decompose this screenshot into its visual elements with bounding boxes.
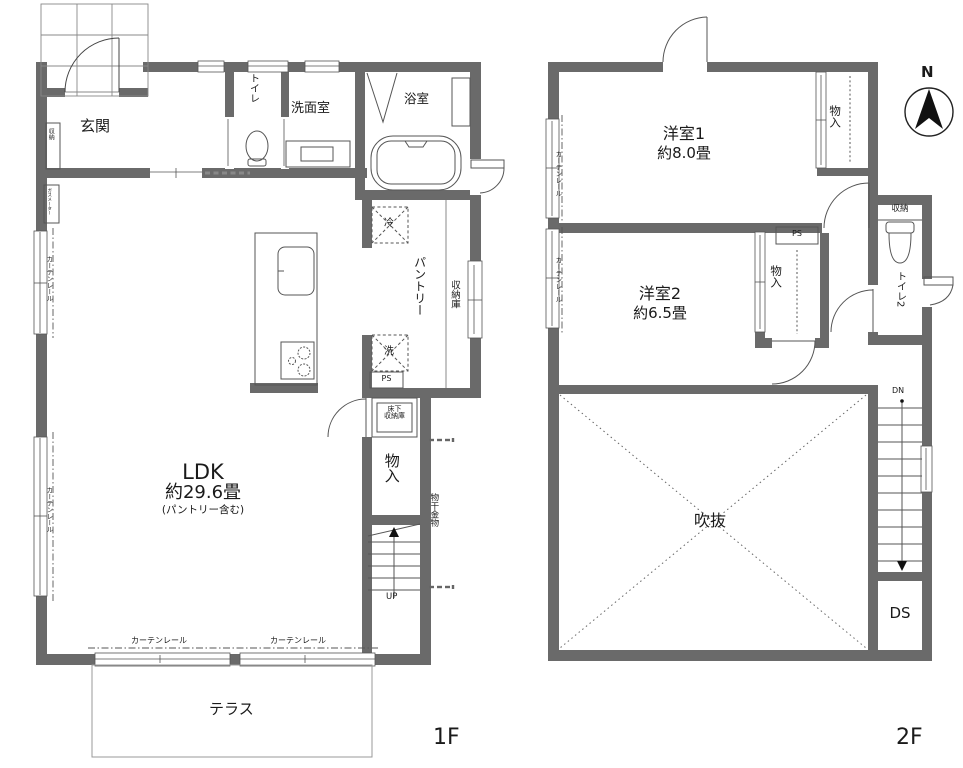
gas-meter-label: ガスメーター bbox=[46, 188, 51, 215]
toilet-label: トイレ bbox=[247, 73, 258, 103]
floorplan-page: 玄関 トイレ 洗面室 浴室 収納 ガスメーター カーテンレール カーテンレール … bbox=[0, 0, 963, 768]
pantry-label: パントリー bbox=[413, 256, 426, 316]
bath-counter bbox=[452, 78, 470, 126]
bath-label: 浴室 bbox=[404, 92, 429, 105]
window bbox=[305, 61, 339, 72]
underfloor-storage-label: 床下 収納庫 bbox=[372, 406, 417, 421]
stairs-up bbox=[368, 524, 420, 598]
stairs-down bbox=[878, 399, 922, 571]
windows-openings bbox=[34, 61, 932, 666]
room1-size-label: 約8.0畳 bbox=[614, 146, 754, 162]
sliding-window bbox=[240, 653, 375, 666]
genkan-label: 玄関 bbox=[80, 119, 110, 135]
door-opening bbox=[822, 223, 868, 233]
floor2-label: 2F bbox=[896, 726, 923, 749]
hall-door-arc bbox=[328, 398, 366, 437]
walls bbox=[36, 62, 932, 665]
ds-label: DS bbox=[878, 606, 922, 622]
fridge-label: 冷 bbox=[384, 219, 394, 230]
ps-label: PS bbox=[370, 375, 403, 383]
room2-door-arc bbox=[772, 341, 815, 384]
sliding-window bbox=[95, 653, 230, 666]
room1-label: 洋室1 bbox=[614, 126, 754, 143]
toilet2-label: トイレ2 bbox=[894, 271, 905, 307]
window bbox=[198, 61, 224, 72]
laundry-hardware-label: 物干金物 bbox=[429, 493, 438, 527]
sliding-door bbox=[468, 261, 482, 338]
monoire-label: 物入 bbox=[383, 453, 399, 483]
bathtub-icon bbox=[371, 136, 461, 190]
ldk-label: LDK bbox=[128, 461, 278, 483]
floorplan-graphics bbox=[0, 0, 963, 768]
washbasin-icon bbox=[286, 141, 350, 167]
washer-label: 洗 bbox=[384, 347, 394, 358]
door-opening bbox=[470, 159, 481, 195]
entrance-porch-tiles bbox=[41, 4, 148, 96]
curtain-rail-label: カーテンレール bbox=[554, 151, 561, 197]
curtain-rail-label: カーテンレール bbox=[45, 256, 52, 302]
room1-door-arc bbox=[824, 183, 869, 228]
washroom-label: 洗面室 bbox=[291, 102, 330, 116]
curtain-rail-label: カーテンレール bbox=[45, 487, 52, 533]
roof-door-arc bbox=[663, 17, 707, 62]
ldk-note-label: (パントリー含む) bbox=[128, 505, 278, 516]
entrance-door-arc bbox=[65, 38, 119, 92]
dn-label: DN bbox=[892, 387, 904, 395]
door-opening bbox=[663, 62, 707, 72]
door-opening bbox=[225, 117, 234, 169]
window bbox=[248, 61, 288, 72]
bath-folding-door bbox=[367, 73, 397, 122]
storage-label: 収納庫 bbox=[449, 280, 459, 309]
monoire2-label: 物入 bbox=[770, 265, 782, 288]
compass-n-label: N bbox=[921, 65, 934, 81]
curtain-rail-lines bbox=[53, 115, 562, 648]
atrium-label: 吹抜 bbox=[694, 513, 726, 530]
underfloor-line2: 収納庫 bbox=[384, 412, 405, 420]
genkan-closet-label: 収納 bbox=[47, 128, 53, 140]
up-label: UP bbox=[386, 593, 397, 602]
ps-label: PS bbox=[776, 230, 818, 238]
room2-label: 洋室2 bbox=[590, 286, 730, 303]
door-opening bbox=[362, 398, 372, 437]
closet2-label: 収納 bbox=[878, 205, 922, 214]
ldk-size-label: 約29.6畳 bbox=[128, 484, 278, 503]
monoire1-label: 物入 bbox=[829, 105, 841, 128]
terrace-label: テラス bbox=[209, 702, 254, 718]
curtain-rail-label: カーテンレール bbox=[554, 257, 561, 303]
window bbox=[921, 446, 932, 492]
kitchen-counter bbox=[255, 233, 317, 385]
toilet-icon bbox=[886, 222, 914, 263]
curtain-rail-label: カーテンレール bbox=[131, 637, 187, 645]
curtain-rail-label: カーテンレール bbox=[270, 637, 326, 645]
toilet-icon bbox=[246, 131, 268, 166]
north-arrow-icon bbox=[905, 88, 953, 136]
floor1-label: 1F bbox=[433, 726, 460, 749]
room2-size-label: 約6.5畳 bbox=[590, 306, 730, 322]
door-opening bbox=[281, 117, 289, 169]
toilet2-door-arc bbox=[831, 289, 873, 332]
stove-icon bbox=[281, 342, 314, 379]
